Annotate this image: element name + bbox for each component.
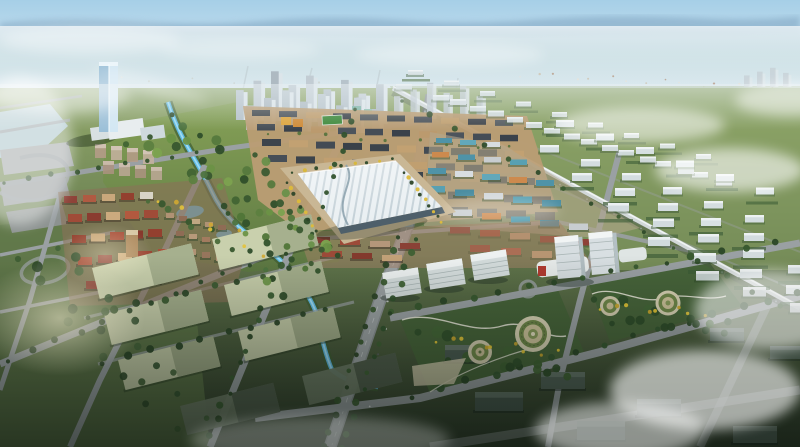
street-tree (642, 230, 646, 234)
commercial-block (500, 135, 518, 142)
street-tree (332, 162, 337, 167)
street-tree (482, 142, 488, 148)
apartment-slab-roof (581, 159, 600, 161)
park-tree (244, 195, 251, 202)
plaza-tree (424, 198, 428, 202)
apartment-slab-roof (622, 173, 641, 175)
town-building (148, 229, 162, 237)
villa (176, 231, 184, 236)
cloud-wisp (440, 198, 560, 222)
commercial-block (370, 144, 389, 151)
town-tree (146, 199, 150, 203)
street-tree (341, 132, 347, 138)
park-tree (143, 141, 154, 152)
park-tree (278, 209, 285, 216)
park-tree (172, 142, 181, 151)
autumn-tree (242, 244, 246, 248)
plaza-tree (291, 172, 293, 174)
apartment-slab-roof (658, 203, 678, 205)
street-tree (617, 215, 621, 219)
street-tree (414, 237, 418, 241)
apartment-slab-roof (636, 147, 654, 149)
apartment-slab-roof (640, 157, 656, 159)
town-building (87, 213, 101, 221)
plaza-tree (329, 166, 333, 170)
commercial-block (262, 139, 281, 146)
cloud (355, 43, 545, 67)
park-tree (232, 220, 238, 226)
industrial-shed (460, 140, 476, 145)
apartment-slab-roof (408, 70, 423, 72)
apartment-slab-roof (540, 145, 559, 147)
villa (218, 225, 226, 230)
commercial-block (397, 146, 416, 153)
tree-strip (688, 250, 723, 254)
apartment-slab-roof (744, 233, 764, 235)
mid-rise-roof (135, 165, 146, 169)
aerial-city-master-plan-rendering (0, 0, 800, 447)
street-tree (195, 150, 199, 154)
tree-strip (746, 202, 778, 205)
street-tree (589, 202, 593, 206)
town-tree (230, 247, 235, 252)
tree-strip (598, 219, 633, 223)
park-tree (319, 247, 325, 253)
plaza-tree (406, 175, 410, 179)
villa (189, 234, 197, 239)
district-tree (384, 139, 387, 142)
park-tree (215, 145, 225, 155)
red-roof-block (370, 241, 390, 247)
town-tree (215, 239, 221, 245)
park-tree (123, 141, 129, 147)
street-tree (743, 245, 750, 252)
district-tree (477, 146, 480, 149)
distant-sprawl (625, 80, 627, 82)
apartment-slab-roof (444, 81, 459, 83)
villa (179, 216, 187, 221)
industrial-shed (428, 168, 446, 174)
mid-rise-roof (151, 167, 162, 171)
street-tree (718, 247, 725, 254)
plaza-tree (315, 230, 318, 233)
town-building (106, 212, 120, 220)
park-tree (189, 175, 198, 184)
plaza-tree (303, 168, 307, 172)
park-tree (264, 239, 271, 246)
commercial-block (268, 155, 287, 162)
sun-glow (57, 223, 153, 287)
apartment-slab-roof (660, 144, 675, 146)
cloud (0, 26, 180, 54)
street-tree (324, 190, 329, 195)
autumn-tree (174, 200, 179, 205)
park-tree (232, 196, 240, 204)
distant-sprawl (192, 78, 194, 80)
apartment-slab-roof (704, 201, 723, 203)
plaza-tree (339, 164, 343, 168)
park-tree (262, 157, 271, 166)
park-tree (200, 171, 207, 178)
park-tree (287, 209, 293, 215)
street-tree (390, 247, 397, 254)
park-tree (211, 135, 221, 145)
park-tree (288, 215, 295, 222)
street-tree (536, 170, 541, 175)
park-tree (276, 199, 284, 207)
plaza-tree (354, 162, 357, 165)
commercial-block (343, 143, 362, 150)
park-tree (247, 248, 252, 253)
cloud (655, 148, 800, 192)
distant-sprawl (318, 81, 320, 83)
plaza-tree (418, 193, 422, 197)
viaduct-pier (640, 228, 642, 230)
park-tree (308, 234, 314, 240)
plaza-tree (311, 224, 314, 227)
autumn-tree (180, 205, 185, 210)
industrial-shed (510, 160, 527, 166)
park-tree (183, 137, 191, 145)
plaza-tree (410, 181, 414, 185)
tree-strip (402, 79, 430, 82)
apartment-slab-roof (698, 234, 719, 237)
villa (202, 237, 210, 242)
plaza-tree (391, 157, 394, 160)
street-tree (75, 170, 80, 175)
cloud (555, 107, 725, 143)
plaza-tree (365, 161, 368, 164)
industrial-shed (432, 152, 449, 158)
street-tree (309, 248, 313, 252)
master-plan-svg (0, 0, 800, 447)
industrial-shed (569, 224, 588, 231)
district-tree (359, 138, 362, 141)
town-building (125, 211, 139, 219)
street-tree (506, 156, 511, 161)
district-tree (508, 145, 511, 148)
park-tree (266, 209, 273, 216)
distant-sprawl (678, 82, 680, 84)
distant-sprawl (552, 73, 554, 75)
district-tree (297, 131, 301, 135)
plaza-tree (314, 166, 318, 170)
street-tree (123, 161, 128, 166)
park-tree (224, 177, 233, 186)
district-tree (324, 133, 328, 137)
mid-rise-roof (111, 146, 122, 150)
apartment-slab-roof (663, 187, 682, 189)
apartment-slab-roof (602, 145, 618, 147)
apartment-slab-roof (653, 219, 674, 222)
distant-sprawl (665, 79, 667, 81)
mid-rise-roof (127, 148, 138, 152)
plaza-tree (299, 205, 303, 209)
plaza-tree (286, 181, 289, 184)
distant-sprawl (519, 76, 520, 77)
park-tree (221, 203, 228, 210)
villa (166, 213, 174, 218)
industrial-shed (484, 157, 501, 163)
park-tree (240, 175, 249, 184)
commercial-block (316, 142, 335, 149)
park-tree (197, 133, 203, 139)
park-tree (242, 219, 250, 227)
street-tree (145, 159, 149, 163)
distant-sprawl (539, 73, 541, 75)
plaza-tree (403, 171, 406, 174)
autumn-tree (208, 227, 212, 231)
autumn-tree (209, 223, 213, 227)
street-tree (340, 148, 346, 154)
street-tree (396, 235, 400, 239)
industrial-shed (536, 180, 554, 186)
town-tree (188, 224, 194, 230)
town-building (64, 196, 77, 203)
villa (192, 219, 200, 224)
red-roof-block (400, 243, 420, 249)
industrial-shed (458, 155, 475, 161)
distant-sprawl (612, 75, 614, 77)
district-tree (445, 143, 448, 146)
industrial-shed (455, 171, 473, 177)
town-building (140, 192, 153, 199)
distant-sprawl (645, 82, 647, 84)
distant-sprawl (233, 82, 235, 84)
commercial-block (289, 140, 308, 147)
plaza-tree (297, 199, 301, 203)
industrial-shed (509, 177, 527, 183)
park-tree (308, 241, 315, 248)
park-tree (284, 243, 291, 250)
plaza-tree (432, 210, 435, 213)
town-building (102, 194, 115, 201)
street-tree (321, 205, 325, 209)
apartment-slab-roof (608, 203, 629, 206)
street-tree (672, 246, 676, 250)
district-tree (267, 133, 269, 135)
mid-rise-roof (103, 161, 114, 165)
industrial-shed (482, 174, 500, 180)
street-tree (317, 217, 321, 221)
park-tree (217, 183, 224, 190)
plaza-tree (304, 211, 308, 215)
plaza-tree (437, 215, 440, 218)
town-tree (165, 206, 172, 213)
plaza-tree (416, 187, 420, 191)
street-tree (561, 186, 566, 191)
apartment-slab-roof (572, 173, 592, 175)
park-tree (261, 168, 270, 177)
apartment-slab-roof (701, 218, 721, 220)
commercial-block (296, 156, 315, 163)
distant-sprawl (256, 80, 257, 81)
plaza-tree (291, 192, 295, 196)
distant-sprawl (577, 78, 579, 80)
plaza-tree (289, 186, 293, 190)
park-tree (287, 224, 294, 231)
park-tree (267, 180, 275, 188)
town-building (144, 210, 158, 218)
park-tree (152, 148, 162, 158)
park-tree (252, 152, 257, 157)
park-tree (167, 134, 177, 144)
street-tree (170, 156, 174, 160)
industrial-shed (455, 190, 474, 197)
commercial-block (473, 134, 491, 141)
park-tree (296, 226, 303, 233)
town-building (121, 193, 134, 200)
park-tree (226, 211, 231, 216)
town-building (83, 195, 96, 202)
autumn-tree (157, 200, 160, 203)
park-tree (199, 157, 207, 165)
autumn-tree (238, 229, 242, 233)
plaza-tree (440, 221, 443, 224)
park-tree (256, 209, 264, 217)
park-tree (243, 231, 249, 237)
district-tree (419, 138, 422, 141)
apartment-slab-roof (648, 237, 670, 240)
park-tree (147, 134, 153, 140)
town-building (68, 214, 82, 222)
plaza-tree (378, 160, 381, 163)
street-tree (96, 165, 101, 170)
plaza-tree (427, 204, 430, 207)
commercial-block (392, 130, 410, 137)
apartment-slab-roof (745, 215, 764, 217)
park-tree (242, 166, 251, 175)
distant-sprawl (587, 78, 589, 80)
industrial-shed (436, 138, 452, 143)
street-tree (772, 239, 779, 246)
cloud (160, 40, 320, 60)
apartment-slab-roof (615, 188, 635, 190)
distant-sprawl (210, 81, 212, 83)
plaza-tree (306, 218, 309, 221)
street-tree (331, 174, 336, 179)
town-tree (159, 200, 166, 207)
apartment-slab-roof (618, 150, 634, 152)
park-tree (282, 189, 290, 197)
